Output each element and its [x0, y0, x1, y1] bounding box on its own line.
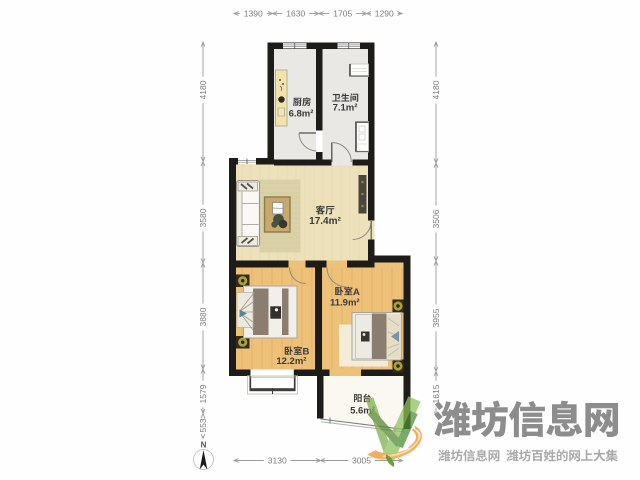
svg-text:1290: 1290 — [375, 9, 394, 19]
svg-text:1390: 1390 — [244, 9, 263, 19]
svg-text:1705: 1705 — [333, 9, 352, 19]
svg-text:4180: 4180 — [431, 80, 441, 99]
svg-text:4180: 4180 — [198, 80, 208, 99]
svg-text:12.2m²: 12.2m² — [276, 356, 306, 367]
svg-text:1615: 1615 — [431, 384, 441, 403]
svg-text:1630: 1630 — [286, 9, 305, 19]
svg-text:3955: 3955 — [431, 308, 441, 327]
svg-text:11.9m²: 11.9m² — [330, 297, 360, 308]
svg-text:3580: 3580 — [198, 208, 208, 227]
svg-text:6.8m²: 6.8m² — [289, 108, 314, 119]
svg-text:7.1m²: 7.1m² — [333, 103, 358, 114]
svg-text:17.4m²: 17.4m² — [309, 216, 341, 227]
svg-text:1579: 1579 — [198, 384, 208, 403]
svg-text:3506: 3506 — [431, 209, 441, 228]
svg-text:3005: 3005 — [352, 456, 371, 466]
svg-text:553: 553 — [198, 418, 208, 432]
svg-text:A: A — [353, 287, 360, 298]
svg-text:3130: 3130 — [268, 456, 287, 466]
svg-text:N: N — [201, 441, 207, 450]
svg-text:3880: 3880 — [198, 307, 208, 326]
